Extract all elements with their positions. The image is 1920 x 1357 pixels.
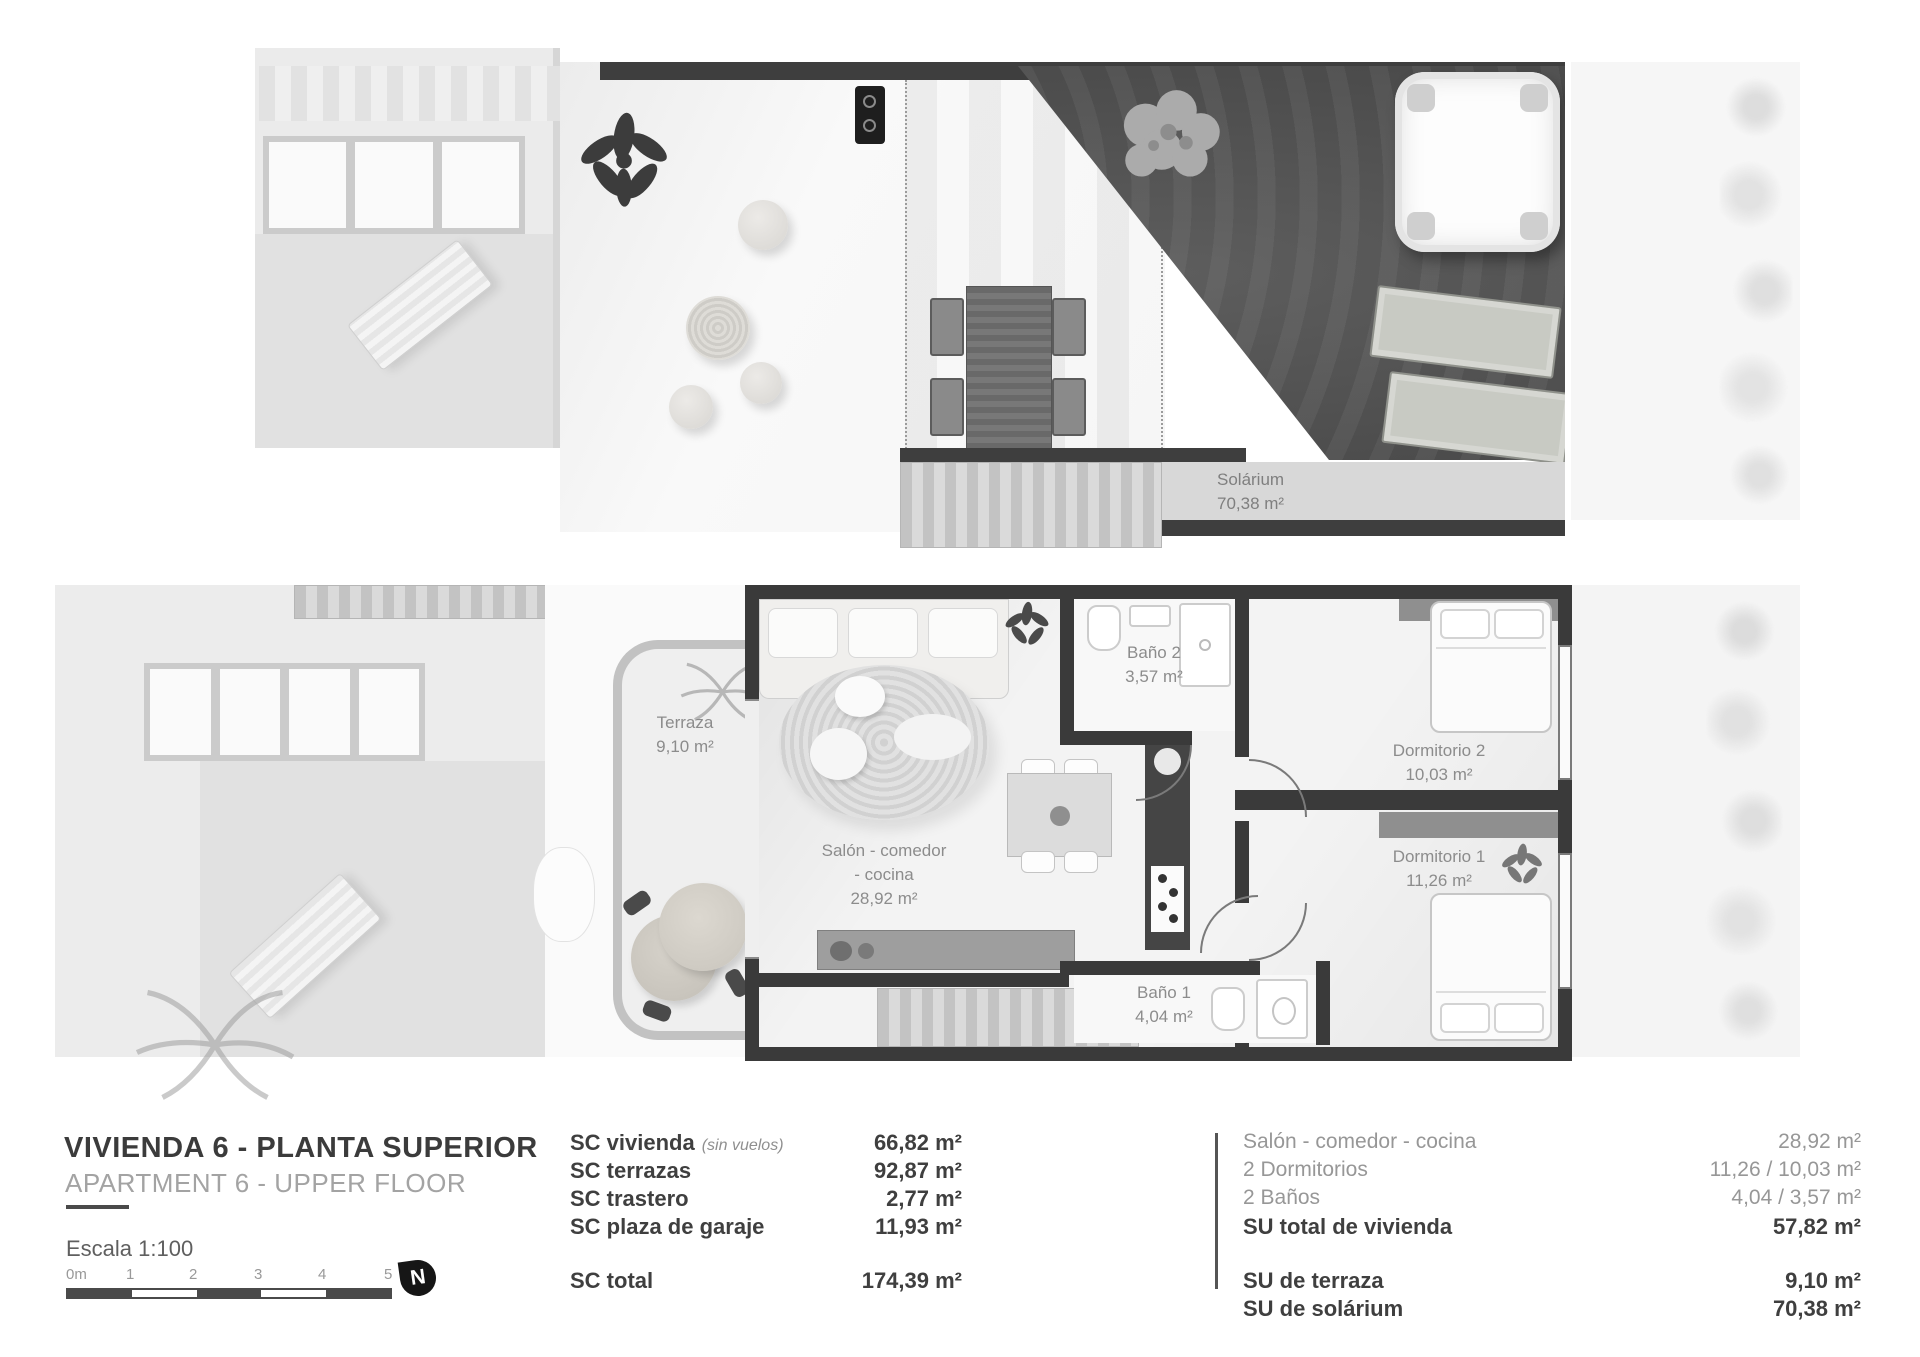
row-label: Salón - comedor - cocina [1243, 1130, 1476, 1154]
duvet-fold [1436, 991, 1546, 993]
solarium-flower-plant-icon [1100, 78, 1245, 213]
wall-bedrooms-left-a [1235, 599, 1249, 757]
row-value: 11,93 m² [875, 1214, 962, 1240]
stairs-to-solarium [900, 462, 1162, 548]
room-label-salon: Salón - comedor - cocina 28,92 m² [789, 839, 979, 910]
sc-area-table: SC vivienda (sin vuelos) 66,82 m² SC ter… [570, 1130, 962, 1296]
scale-tick: 5 [384, 1266, 392, 1283]
scale-tick: 3 [254, 1266, 262, 1283]
room-label-bano2: Baño 2 3,57 m² [1079, 641, 1229, 689]
lower-garden-windows [144, 663, 425, 761]
bed-dorm1 [1430, 893, 1552, 1041]
table-row: SU total de vivienda 57,82 m² [1243, 1214, 1861, 1242]
table-row: SU de terraza 9,10 m² [1243, 1268, 1861, 1296]
hob-burner [863, 119, 876, 132]
bench-item [858, 943, 874, 959]
sofa-cushion [848, 608, 918, 658]
terrace-pouf [738, 200, 788, 250]
media-bench [817, 930, 1075, 970]
hob-burner [1169, 888, 1178, 897]
solarium-parapet-bar [900, 448, 1246, 462]
wall-salon-bottom [759, 973, 1069, 987]
dining-table [966, 286, 1052, 456]
table-row: 2 Baños 4,04 / 3,57 m² [1243, 1186, 1861, 1214]
window-pane [220, 669, 281, 755]
table-total-row: SC total 174,39 m² [570, 1268, 962, 1296]
room-label-bano1: Baño 1 4,04 m² [1089, 981, 1239, 1029]
row-value: 11,26 / 10,03 m² [1710, 1158, 1861, 1182]
scale-bar-segments [66, 1288, 392, 1299]
dwelling-unit: Salón - comedor - cocina 28,92 m² [745, 585, 1572, 1061]
jacuzzi-seat [1520, 212, 1548, 240]
sofa-cushion [928, 608, 998, 658]
room-name: Solárium [1217, 468, 1284, 492]
row-value: 92,87 m² [874, 1158, 962, 1184]
table-row: SU de solárium 70,38 m² [1243, 1296, 1861, 1324]
table-row: SC vivienda (sin vuelos) 66,82 m² [570, 1130, 962, 1158]
rug-pouf [810, 728, 867, 780]
row-label: SC plaza de garaje [570, 1214, 764, 1240]
row-value: 28,92 m² [1778, 1130, 1861, 1154]
solarium-level-plan: Solárium 70,38 m² [255, 48, 1800, 548]
scale-segment [68, 1290, 132, 1297]
bed-dorm2 [1430, 601, 1552, 733]
washbasin-counter [1256, 979, 1308, 1039]
dining-chair [1052, 298, 1086, 356]
scale-segment [326, 1290, 390, 1297]
overhang-guide-line [905, 80, 907, 460]
hob-burner [1158, 874, 1167, 883]
scale-tick: 1 [126, 1266, 134, 1283]
room-name: Baño 1 [1089, 981, 1239, 1005]
terrace-bench [533, 847, 595, 942]
jacuzzi-seat [1407, 212, 1435, 240]
window-pane [269, 142, 346, 228]
scale-tick: 4 [318, 1266, 326, 1283]
row-label: SU total de vivienda [1243, 1214, 1452, 1240]
page-subtitle: APARTMENT 6 - UPPER FLOOR [65, 1168, 466, 1199]
plant-icon [999, 599, 1055, 655]
table-row: SC plaza de garaje 11,93 m² [570, 1214, 962, 1242]
floor-plan-sheet: Solárium 70,38 m² [0, 0, 1920, 1357]
row-note: (sin vuelos) [702, 1137, 784, 1155]
top-garden-windows [263, 136, 525, 234]
wall-bano2-left [1060, 599, 1074, 745]
window-dorm1 [1558, 853, 1572, 989]
scale-segment [261, 1290, 325, 1297]
round-rug [779, 665, 989, 820]
wall-bedrooms-left-b [1235, 821, 1249, 903]
table-row: SC trastero 2,77 m² [570, 1186, 962, 1214]
dining-chair [930, 298, 964, 356]
scale-label: Escala 1:100 [66, 1236, 193, 1262]
row-label: SU de solárium [1243, 1296, 1403, 1322]
terrace-pouf [740, 362, 782, 404]
room-area: 9,10 m² [630, 735, 740, 759]
row-value: 9,10 m² [1785, 1268, 1861, 1294]
row-value: 70,38 m² [1773, 1296, 1861, 1322]
room-name: - cocina [789, 863, 979, 887]
indoor-dining-chair [1064, 851, 1098, 873]
table-gap [1243, 1242, 1861, 1268]
room-label-terraza: Terraza 9,10 m² [630, 711, 740, 759]
row-value: 4,04 / 3,57 m² [1731, 1186, 1861, 1210]
title-divider [66, 1205, 129, 1209]
window-pane [359, 669, 420, 755]
jacuzzi [1395, 72, 1560, 252]
room-area: 28,92 m² [789, 887, 979, 911]
garden-plants [1720, 72, 1792, 510]
row-label: 2 Baños [1243, 1186, 1320, 1210]
hob-burner [863, 95, 876, 108]
duvet-fold [1436, 647, 1546, 649]
wall-bano1-right [1316, 961, 1330, 1045]
jacuzzi-seat [1520, 84, 1548, 112]
footer-divider [1215, 1133, 1218, 1289]
pillow [1494, 1003, 1544, 1033]
indoor-dining-chair [1021, 851, 1055, 873]
pillow [1440, 1003, 1490, 1033]
room-label-dorm2: Dormitorio 2 10,03 m² [1329, 739, 1549, 787]
row-label: SC trastero [570, 1186, 689, 1212]
terrace-round-table [659, 883, 747, 971]
window-pane [355, 142, 432, 228]
top-right-garden [1565, 62, 1800, 520]
row-value: 66,82 m² [874, 1130, 962, 1156]
table-row: Salón - comedor - cocina 28,92 m² [1243, 1130, 1861, 1158]
scale-tick: 2 [189, 1266, 197, 1283]
scale-segment [132, 1290, 196, 1297]
kitchen-hob [1151, 866, 1184, 932]
wall-bano2-bottom [1060, 731, 1192, 745]
room-label-solarium: Solárium 70,38 m² [1217, 468, 1284, 516]
terrace-pouf [686, 296, 750, 360]
rug-pouf [835, 676, 885, 717]
room-area: 4,04 m² [1089, 1005, 1239, 1029]
north-arrow-icon: N [398, 1258, 439, 1299]
window-dorm2 [1558, 645, 1572, 780]
window-pane [150, 669, 211, 755]
scale-segment [197, 1290, 261, 1297]
hob-burner [1158, 902, 1167, 911]
scale-tick: 0m [66, 1266, 87, 1283]
terrace-sliding-door [745, 699, 759, 959]
jacuzzi-seat [1407, 84, 1435, 112]
dining-chair [1052, 378, 1086, 436]
window-pane [289, 669, 350, 755]
row-value: 57,82 m² [1773, 1214, 1861, 1240]
row-label: 2 Dormitorios [1243, 1158, 1368, 1182]
indoor-dining-table [1007, 773, 1112, 857]
upper-floor-plan: Terraza 9,10 m² [55, 585, 1800, 1065]
room-name: Baño 2 [1079, 641, 1229, 665]
room-area: 70,38 m² [1217, 492, 1284, 516]
solarium-label-box: Solárium 70,38 m² [1162, 462, 1565, 520]
row-label: SU de terraza [1243, 1268, 1384, 1294]
page-title: VIVIENDA 6 - PLANTA SUPERIOR [64, 1132, 538, 1165]
dorm1-wardrobe [1379, 812, 1558, 838]
room-name: Salón - comedor [789, 839, 979, 863]
row-value: 174,39 m² [862, 1268, 962, 1294]
sofa-cushion [768, 608, 838, 658]
palm-plant-icon [115, 970, 315, 1120]
terrace-pouf [669, 385, 713, 429]
room-name: Dormitorio 2 [1329, 739, 1549, 763]
room-area: 3,57 m² [1079, 665, 1229, 689]
washbasin [1129, 605, 1171, 627]
hob-burner [1169, 914, 1178, 923]
lower-right-garden [1572, 585, 1800, 1057]
scale-bar: 0m 1 2 3 4 5 [66, 1266, 392, 1302]
north-letter: N [409, 1265, 427, 1291]
su-area-table: Salón - comedor - cocina 28,92 m² 2 Dorm… [1243, 1130, 1861, 1324]
room-area: 10,03 m² [1329, 763, 1549, 787]
row-label: SC terrazas [570, 1158, 691, 1184]
row-label: SC total [570, 1268, 653, 1294]
row-label: SC vivienda [570, 1130, 695, 1156]
rug-center [894, 714, 971, 760]
garden-plants [1707, 595, 1782, 1047]
pillow [1494, 609, 1544, 639]
bench-item [830, 941, 852, 961]
table-gap [570, 1242, 962, 1268]
potted-plant-icon [568, 106, 680, 220]
window-pane [442, 142, 519, 228]
plant-icon [1496, 839, 1548, 895]
room-name: Terraza [630, 711, 740, 735]
dining-chair [930, 378, 964, 436]
wall-bano1-top [1060, 961, 1260, 975]
basin [1272, 997, 1296, 1025]
table-row: SC terrazas 92,87 m² [570, 1158, 962, 1186]
solarium-bottom-bar [1162, 520, 1565, 536]
table-plant [1050, 806, 1070, 826]
table-row: 2 Dormitorios 11,26 / 10,03 m² [1243, 1158, 1861, 1186]
outdoor-hob-icon [855, 86, 885, 144]
pillow [1440, 609, 1490, 639]
row-value: 2,77 m² [886, 1186, 962, 1212]
